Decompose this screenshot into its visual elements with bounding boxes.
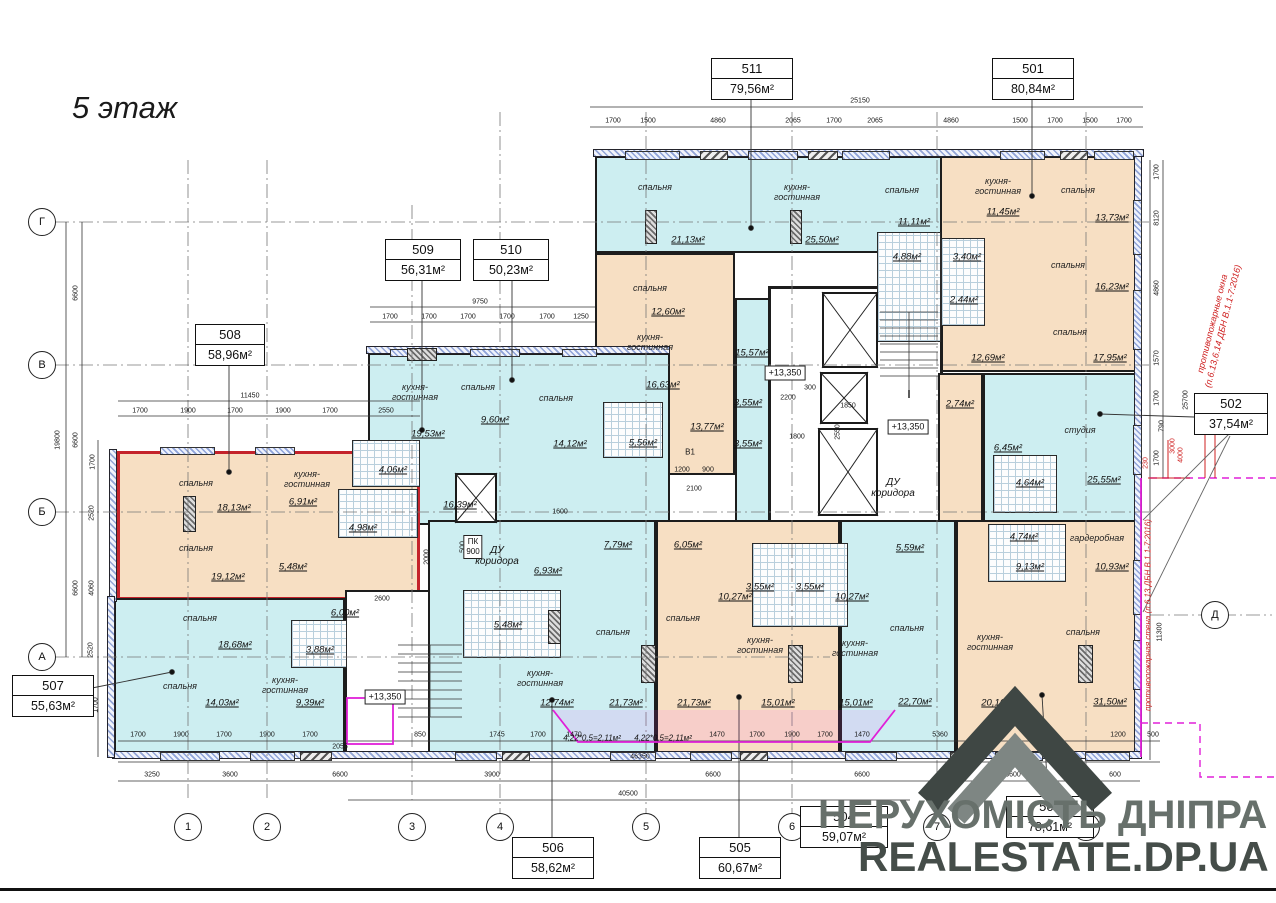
room-area: 3,55м² [746, 582, 774, 593]
window [562, 349, 597, 357]
dim: 900 [702, 467, 714, 474]
vent-hatch [740, 752, 768, 761]
room-name: спальня [1061, 185, 1095, 195]
dim: 1700 [90, 454, 97, 470]
dim: 2055 [332, 744, 348, 751]
dim: 1700 [302, 732, 318, 739]
room-area: 3,55м² [734, 439, 762, 450]
room-name: кухня-гостинная [819, 638, 891, 658]
window [1133, 640, 1142, 690]
room-area: 16,23м² [1095, 282, 1128, 293]
apt-area: 50,23м² [474, 260, 548, 280]
room-area: 19,12м² [211, 572, 244, 583]
dim: 1700 [382, 314, 398, 321]
dim-red: 4000 [1178, 447, 1185, 463]
room-area: 20,16м² [981, 698, 1014, 709]
apt-area: 55,63м² [13, 696, 93, 716]
room-area: 16,39м² [443, 500, 476, 511]
watermark-line2: REALESTATE.DP.UA [858, 833, 1269, 881]
dim: 1250 [573, 314, 589, 321]
dim: 2520 [89, 505, 96, 521]
window [1133, 200, 1142, 255]
room-name: спальня [885, 185, 919, 195]
room-area: 18,68м² [218, 640, 251, 651]
room-name: спальня [638, 182, 672, 192]
room-area: 3,40м² [953, 252, 981, 263]
dim-total-right: 25700 [1183, 390, 1190, 409]
window [255, 447, 295, 455]
dim: 1745 [489, 732, 505, 739]
pk-box: ПК 900 [463, 535, 482, 559]
room-name: спальня [666, 613, 700, 623]
column [641, 645, 656, 683]
apt-area: 56,31м² [386, 260, 460, 280]
dim: 1800 [789, 434, 805, 441]
room-area: 21,13м² [671, 235, 704, 246]
apt-box-506: 506 58,62м² [512, 837, 594, 879]
bathroom [352, 440, 420, 487]
dim: 2520 [88, 642, 95, 658]
dim: 2200 [780, 395, 796, 402]
room-area: 6,00м² [331, 608, 359, 619]
level-mark: +13,350 [888, 420, 929, 435]
dim: 1600 [552, 509, 568, 516]
room-area: 12,74м² [540, 698, 573, 709]
bathroom [603, 402, 663, 458]
room-name: спальня [1051, 260, 1085, 270]
dim: 1700 [1154, 390, 1161, 406]
room-area: 9,39м² [296, 698, 324, 709]
pk-value: 900 [466, 547, 479, 557]
room-area: 3,55м² [734, 398, 762, 409]
room-area: 6,45м² [994, 443, 1022, 454]
dim: 4860 [1154, 280, 1161, 296]
room-area: 15,01м² [761, 698, 794, 709]
apt-number: 501 [993, 59, 1073, 79]
dim: 1500 [1012, 118, 1028, 125]
vent-hatch [502, 752, 530, 761]
room-name: спальня [179, 543, 213, 553]
dim: 1700 [499, 314, 515, 321]
dim: 11300 [1157, 623, 1164, 642]
window [1085, 752, 1130, 761]
watermark-line1: НЕРУХОМІСТЬ ДНІПРА [818, 793, 1276, 838]
apt-number: 511 [712, 59, 792, 79]
apt-number: 509 [386, 240, 460, 260]
window [160, 447, 215, 455]
room-area: 10,27м² [718, 592, 751, 603]
duct-shaft [455, 473, 497, 523]
dim: 1700 [826, 118, 842, 125]
room-area: 5,59м² [896, 543, 924, 554]
apt-box-510: 510 50,23м² [473, 239, 549, 281]
dim: 6600 [73, 432, 80, 448]
dim: 2550 [835, 424, 842, 440]
axis-2: 2 [253, 813, 281, 841]
dim: 3600 [222, 772, 238, 779]
dim: 2000 [424, 549, 431, 565]
room-area: 13,73м² [1095, 213, 1128, 224]
room-area: 15,57м² [735, 348, 768, 359]
dim: 1500 [1082, 118, 1098, 125]
room-name: кухня-гостинная [614, 332, 686, 352]
dim: 6600 [854, 772, 870, 779]
room-area: 5,56м² [629, 438, 657, 449]
room-area: 6,91м² [289, 497, 317, 508]
room-name: кухня-гостинная [724, 635, 796, 655]
room-name: спальня [163, 681, 197, 691]
vent-hatch [700, 151, 728, 160]
column [1078, 645, 1093, 683]
wall-left-507 [107, 596, 115, 758]
room-area: 6,05м² [674, 540, 702, 551]
dim-total-509: 9750 [472, 299, 488, 306]
apt-box-502: 502 37,54м² [1194, 393, 1268, 435]
dim: 1470 [709, 732, 725, 739]
elevator-shaft [818, 428, 878, 516]
dim: 6600 [332, 772, 348, 779]
room-area: 3,88м² [306, 645, 334, 656]
window [1094, 151, 1134, 160]
level-mark: +13,350 [765, 366, 806, 381]
room-area: 11,45м² [987, 207, 1020, 218]
room-name: спальня [1066, 627, 1100, 637]
room-area: 4,06м² [379, 465, 407, 476]
axis-B: Б [28, 498, 56, 526]
apt-number: 508 [196, 325, 264, 345]
room-area: 5,48м² [494, 620, 522, 631]
axis-3: 3 [398, 813, 426, 841]
apt-area: 58,62м² [513, 858, 593, 878]
dim: 6600 [705, 772, 721, 779]
vent-hatch [1060, 151, 1088, 160]
axis-G: Г [28, 208, 56, 236]
apt-area: 79,56м² [712, 79, 792, 99]
dim: 1200 [1110, 732, 1126, 739]
apt-box-509: 509 56,31м² [385, 239, 461, 281]
dim: 1850 [840, 403, 856, 410]
balcony-note: 4,22*0,5=2,11м² [563, 734, 621, 743]
room-area: 25,55м² [1087, 475, 1120, 486]
room-area: 14,03м² [205, 698, 238, 709]
dim: 1470 [854, 732, 870, 739]
room-name: спальня [633, 283, 667, 293]
dim: 1700 [530, 732, 546, 739]
dim: 3250 [144, 772, 160, 779]
column [790, 210, 802, 244]
dim: 1700 [460, 314, 476, 321]
duct-corridor-label: ДУ коридора [871, 477, 915, 499]
apt-number: 510 [474, 240, 548, 260]
vent-hatch [950, 752, 978, 761]
page-title: 5 этаж [72, 90, 177, 126]
dim: 8120 [1154, 210, 1161, 226]
elevator-shaft [820, 372, 868, 424]
room-area: 12,69м² [971, 353, 1004, 364]
room-name: кухня-гостинная [379, 382, 451, 402]
apt-area: 60,67м² [700, 858, 780, 878]
dim: 3900 [484, 772, 500, 779]
room-name: кухня-гостинная [271, 469, 343, 489]
room-area: 15,01м² [839, 698, 872, 709]
room-name: спальня [890, 623, 924, 633]
dim: 4060 [89, 580, 96, 596]
window [470, 349, 520, 357]
room-name: спальня [461, 382, 495, 392]
dim: 4860 [943, 118, 959, 125]
dim: 1700 [227, 408, 243, 415]
dim: 1700 [1154, 164, 1161, 180]
dim: 1200 [674, 467, 690, 474]
dim-red: 3000 [1170, 438, 1177, 454]
apt-area: 58,96м² [196, 345, 264, 365]
window [160, 752, 220, 761]
room-area: 7,79м² [604, 540, 632, 551]
dim: 2100 [686, 486, 702, 493]
strip-501-block [938, 373, 983, 522]
dim: 300 [804, 385, 816, 392]
room-area: 19,53м² [411, 429, 444, 440]
fire-wall-note: противопожарная стена (п.6.13 ДБН В.1.1-… [1144, 519, 1153, 711]
vent-hatch [808, 151, 838, 160]
room-area: 21,73м² [609, 698, 642, 709]
pk-label: ПК [466, 537, 479, 547]
dim-red: 230 [1143, 457, 1150, 469]
dim: 850 [414, 732, 426, 739]
axis-4: 4 [486, 813, 514, 841]
apt-area: 37,54м² [1195, 414, 1267, 434]
room-area: 21,73м² [677, 698, 710, 709]
dim: 1700 [1154, 450, 1161, 466]
axis-1: 1 [174, 813, 202, 841]
room-name: спальня [596, 627, 630, 637]
window [625, 151, 680, 160]
room-area: 2,74м² [946, 399, 974, 410]
dim: 1570 [1154, 350, 1161, 366]
room-area: 13,77м² [690, 422, 723, 433]
dim: 1700 [421, 314, 437, 321]
room-area: 4,98м² [349, 523, 377, 534]
room-name: кухня-гостинная [962, 176, 1034, 196]
room-area: 10,27м² [835, 592, 868, 603]
window [748, 151, 798, 160]
bathroom [877, 232, 941, 342]
dim: 6600 [1005, 772, 1021, 779]
room-area: 6,93м² [534, 566, 562, 577]
window [1133, 425, 1142, 475]
room-area: 4,88м² [893, 252, 921, 263]
window [845, 752, 897, 761]
dim: 1700 [216, 732, 232, 739]
room-name: гардеробная [1070, 533, 1124, 543]
dim-total-40500: 40500 [618, 791, 637, 798]
window [995, 752, 1043, 761]
apt-box-505: 505 60,67м² [699, 837, 781, 879]
dim: 6600 [73, 580, 80, 596]
window [1133, 560, 1142, 615]
window [842, 151, 890, 160]
dim: 2065 [785, 118, 801, 125]
elevator-shaft [822, 292, 878, 368]
room-area: 9,13м² [1016, 562, 1044, 573]
room-area: 3,55м² [796, 582, 824, 593]
apt-number: 506 [513, 838, 593, 858]
dim: 6600 [73, 285, 80, 301]
balcony-note: 4,22*0,5=2,11м² [634, 734, 692, 743]
dim: 1900 [180, 408, 196, 415]
dim: 1700 [130, 732, 146, 739]
room-area: 10,93м² [1095, 562, 1128, 573]
apt-number: 507 [13, 676, 93, 696]
window [690, 752, 732, 761]
axis-D: Д [1201, 601, 1229, 629]
duct-label-line2: коридора [871, 488, 915, 499]
window [455, 752, 497, 761]
apt-area: 80,84м² [993, 79, 1073, 99]
room-area: 17,95м² [1093, 353, 1126, 364]
axis-5: 5 [632, 813, 660, 841]
room-name: спальня [1053, 327, 1087, 337]
room-area: 12,60м² [651, 307, 684, 318]
dim: 1700 [605, 118, 621, 125]
fire-windows-note: противопожарные окна (п.6.13,6.14 ДБН В.… [1192, 261, 1244, 389]
room-area: 18,13м² [217, 503, 250, 514]
duct-label-line1: ДУ [871, 477, 915, 488]
room-name: спальня [539, 393, 573, 403]
level-mark: +13,350 [365, 690, 406, 705]
dim: 790 [1159, 420, 1166, 432]
room-area: 14,12м² [553, 439, 586, 450]
apt-box-501: 501 80,84м² [992, 58, 1074, 100]
apt-number: 505 [700, 838, 780, 858]
dim: 1900 [259, 732, 275, 739]
room-name: кухня-гостинная [954, 632, 1026, 652]
dim: 4860 [710, 118, 726, 125]
window [250, 752, 295, 761]
dim: 1900 [784, 732, 800, 739]
dim: 1700 [132, 408, 148, 415]
column [548, 610, 561, 644]
room-area: 4,74м² [1010, 532, 1038, 543]
room-area: 9,60м² [481, 415, 509, 426]
room-name: спальня [183, 613, 217, 623]
room-area: 5,48м² [279, 562, 307, 573]
room-name: спальня [179, 478, 213, 488]
dim-total-508: 11450 [241, 393, 260, 400]
dim: 1700 [817, 732, 833, 739]
room-area: 2,44м² [950, 295, 978, 306]
room-area: 16,63м² [646, 380, 679, 391]
apt-box-508: 508 58,96м² [195, 324, 265, 366]
dim: 5360 [932, 732, 948, 739]
window [1000, 151, 1045, 160]
dim: 600 [1109, 772, 1121, 779]
room-name: кухня-гостинная [761, 182, 833, 202]
dim: 1700 [1116, 118, 1132, 125]
window [1133, 290, 1142, 350]
apt-box-507: 507 55,63м² [12, 675, 94, 717]
dim: 1500 [640, 118, 656, 125]
dim: 1700 [322, 408, 338, 415]
dim: 1700 [749, 732, 765, 739]
dim: 1700 [539, 314, 555, 321]
room-area: 31,50м² [1093, 697, 1126, 708]
apt-box-511: 511 79,56м² [711, 58, 793, 100]
sheet-bottom-rule [0, 888, 1276, 891]
vent-hatch [300, 752, 332, 761]
v1-label: В1 [685, 448, 695, 457]
dim: 1700 [1047, 118, 1063, 125]
dim: 1900 [275, 408, 291, 415]
floor-plan: 5 этаж [0, 0, 1276, 903]
column [645, 210, 657, 244]
room-area: 25,50м² [805, 235, 838, 246]
axis-V: В [28, 351, 56, 379]
room-area: 4,64м² [1016, 478, 1044, 489]
dim: 2065 [867, 118, 883, 125]
room-name: студия [1064, 425, 1095, 435]
column [407, 348, 437, 361]
dim-total-46350: 46350 [630, 754, 649, 761]
room-name: кухня-гостинная [249, 675, 321, 695]
dim: 2550 [378, 408, 394, 415]
dim-total-left: 19800 [55, 430, 62, 449]
column [183, 496, 196, 532]
room-area: 11,11м² [898, 217, 930, 228]
apt-number: 502 [1195, 394, 1267, 414]
dim: 500 [1147, 732, 1159, 739]
dim: 1900 [173, 732, 189, 739]
room-name: кухня-гостинная [504, 668, 576, 688]
wall-left-508 [109, 449, 117, 602]
room-area: 22,70м² [898, 697, 931, 708]
dim-total-top: 25150 [850, 98, 869, 105]
axis-A: А [28, 643, 56, 671]
dim: 2600 [374, 596, 390, 603]
